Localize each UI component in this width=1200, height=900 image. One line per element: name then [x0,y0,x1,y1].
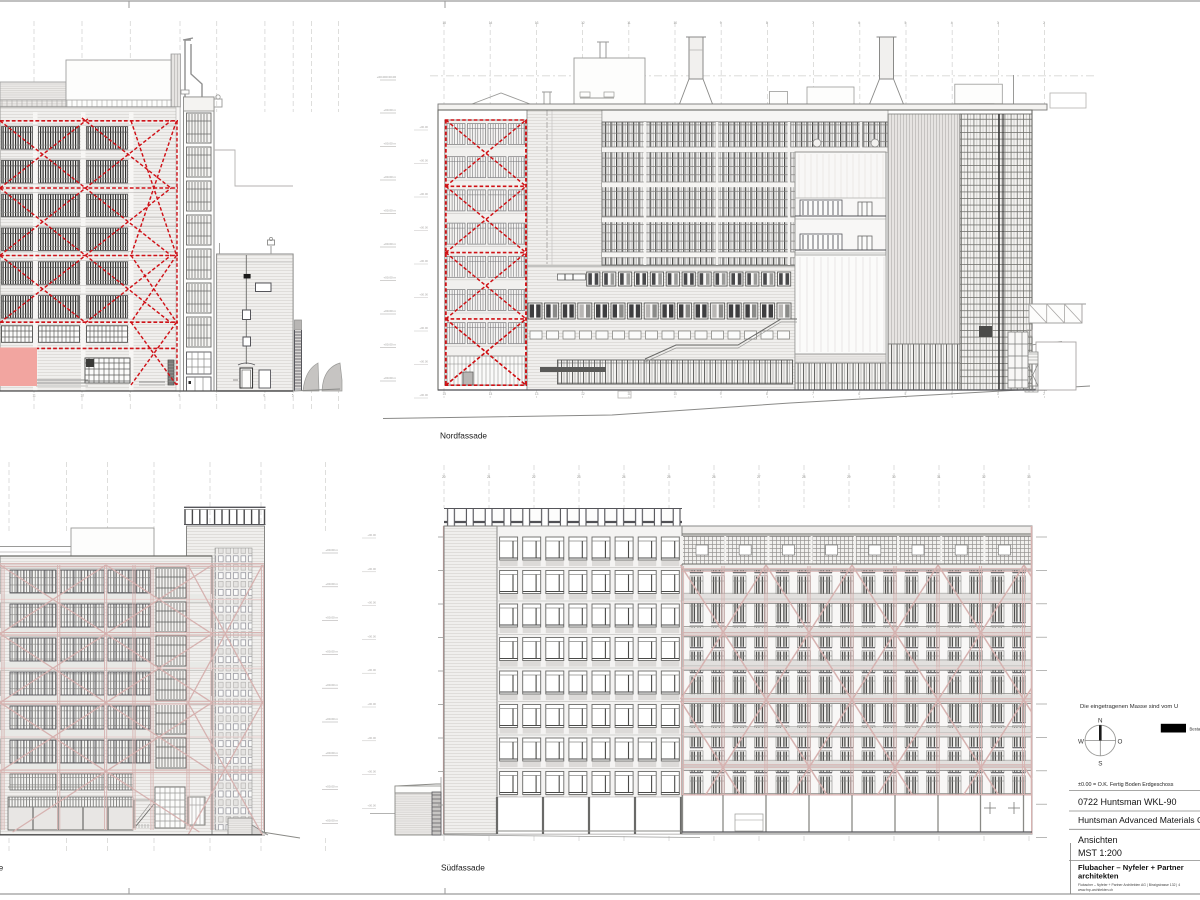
svg-text:6: 6 [858,21,860,25]
svg-text:W: W [1078,739,1084,746]
svg-text:de: de [0,863,4,873]
svg-text:8: 8 [766,21,768,25]
svg-text:Südfassade: Südfassade [441,863,485,873]
svg-text:architekten: architekten [1078,872,1119,881]
svg-text:+00.00: +00.00 [367,668,376,672]
svg-text:S: S [1098,761,1102,768]
svg-text:4: 4 [951,21,953,25]
svg-text:+00.00 m: +00.00 m [383,142,396,146]
svg-text:±0.00 = O.K. Fertig Boden Erdg: ±0.00 = O.K. Fertig Boden Erdgeschoss [1078,782,1174,788]
svg-text:5: 5 [292,394,294,398]
svg-text:27: 27 [757,475,761,479]
svg-text:7: 7 [812,392,814,396]
svg-text:28: 28 [802,475,806,479]
svg-text:+00.00: +00.00 [367,736,376,740]
svg-text:+00.00: +00.00 [367,803,376,807]
svg-text:Bestand: Bestand [1190,727,1200,732]
svg-text:10: 10 [81,394,85,398]
svg-text:3: 3 [997,21,999,25]
svg-text:3: 3 [997,392,999,396]
svg-text:www.fnp-architekten.ch: www.fnp-architekten.ch [1078,888,1113,892]
svg-text:+00.00 m: +00.00 m [325,785,338,789]
svg-text:+00.00 m: +00.00 m [325,751,338,755]
svg-text:10: 10 [674,392,678,396]
svg-text:5: 5 [905,392,907,396]
svg-text:7: 7 [215,394,217,398]
svg-text:31: 31 [937,475,941,479]
svg-text:+00.00: +00.00 [419,159,428,163]
svg-text:9: 9 [129,394,131,398]
svg-text:Nordfassade: Nordfassade [440,431,487,441]
svg-text:+00.00: +00.00 [419,326,428,330]
svg-text:Die eingetragenen Masse sind v: Die eingetragenen Masse sind vom U [1080,704,1178,710]
svg-text:7: 7 [812,21,814,25]
svg-text:+00.00 m: +00.00 m [325,616,338,620]
svg-text:+00.00 m: +00.00 m [325,717,338,721]
svg-text:29: 29 [847,475,851,479]
svg-text:+00.00: +00.00 [367,634,376,638]
svg-text:+00.00 m: +00.00 m [383,108,396,112]
svg-text:+00.00: +00.00 [367,601,376,605]
svg-text:11: 11 [33,394,37,398]
svg-text:+00.00 m: +00.00 m [383,276,396,280]
svg-text:9: 9 [720,392,722,396]
svg-text:+00.00 m: +00.00 m [325,818,338,822]
svg-text:+00.00 m: +00.00 m [383,175,396,179]
svg-text:13: 13 [535,392,539,396]
svg-text:5: 5 [905,21,907,25]
svg-text:+00.00: +00.00 [419,125,428,129]
svg-text:+00.00 m: +00.00 m [325,548,338,552]
svg-text:26: 26 [712,475,716,479]
svg-text:+00.00 m: +00.00 m [383,309,396,313]
svg-text:+00.000 00.00: +00.000 00.00 [377,75,397,79]
svg-text:11: 11 [627,21,631,25]
svg-text:12: 12 [581,21,585,25]
svg-text:+00.00: +00.00 [367,533,376,537]
svg-text:+00.00: +00.00 [419,259,428,263]
svg-text:9: 9 [720,21,722,25]
svg-text:+00.00: +00.00 [419,293,428,297]
svg-text:11: 11 [627,392,631,396]
svg-text:+00.00: +00.00 [367,567,376,571]
svg-text:+00.00 m: +00.00 m [383,343,396,347]
svg-text:+00.00: +00.00 [419,226,428,230]
svg-text:30: 30 [892,475,896,479]
svg-text:+00.00 m: +00.00 m [383,376,396,380]
svg-text:+00.00: +00.00 [367,702,376,706]
svg-text:21: 21 [487,475,491,479]
svg-text:13: 13 [535,21,539,25]
svg-text:2: 2 [1043,21,1045,25]
svg-text:14: 14 [489,21,493,25]
svg-text:8: 8 [179,394,181,398]
svg-text:0722 Huntsman WKL-90: 0722 Huntsman WKL-90 [1078,797,1177,807]
svg-text:15: 15 [443,392,447,396]
svg-text:10: 10 [674,21,678,25]
svg-text:Huntsman Advanced Materials Gm: Huntsman Advanced Materials Gm [1078,815,1200,825]
svg-text:33: 33 [1027,475,1031,479]
svg-text:+00.00 m: +00.00 m [325,683,338,687]
svg-text:20: 20 [442,475,446,479]
svg-text:2: 2 [1043,392,1045,396]
svg-text:14: 14 [489,392,493,396]
svg-text:Flubacher – Nyfeler + Partner: Flubacher – Nyfeler + Partner Architekte… [1078,883,1180,887]
svg-text:O: O [1118,739,1123,746]
svg-text:25: 25 [667,475,671,479]
svg-text:+00.00: +00.00 [419,360,428,364]
svg-text:12: 12 [581,392,585,396]
svg-text:8: 8 [766,392,768,396]
svg-text:6: 6 [858,392,860,396]
svg-text:6: 6 [263,394,265,398]
svg-text:24: 24 [622,475,626,479]
svg-text:+00.00: +00.00 [419,192,428,196]
svg-text:+00.00: +00.00 [419,393,428,397]
svg-text:+00.00 m: +00.00 m [383,209,396,213]
svg-text:23: 23 [577,475,581,479]
svg-text:32: 32 [982,475,986,479]
svg-text:N: N [1098,718,1103,725]
svg-text:+00.00 m: +00.00 m [325,582,338,586]
svg-text:22: 22 [532,475,536,479]
svg-text:+00.00 m: +00.00 m [383,242,396,246]
svg-text:MST 1:200: MST 1:200 [1078,848,1122,858]
svg-text:+00.00: +00.00 [367,770,376,774]
svg-text:Ansichten: Ansichten [1078,835,1118,845]
svg-text:15: 15 [443,21,447,25]
svg-text:+00.00 m: +00.00 m [325,649,338,653]
